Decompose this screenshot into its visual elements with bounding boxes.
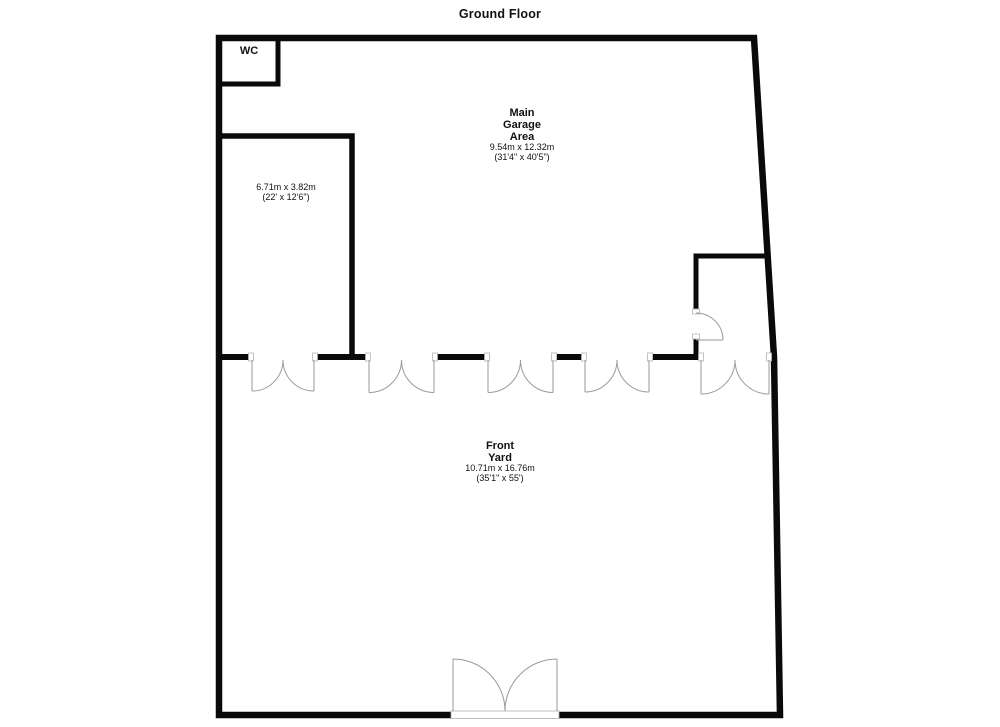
door-jamb bbox=[693, 334, 700, 339]
room-name-line: Main bbox=[490, 107, 555, 119]
room-label-front-yard: Front Yard 10.71m x 16.76m (35'1" x 55') bbox=[465, 440, 535, 483]
room-dims-imperial: (31'4" x 40'5") bbox=[490, 153, 555, 163]
store-room-wall bbox=[219, 136, 352, 357]
door-jamb bbox=[249, 353, 254, 361]
middle-wall-doors bbox=[252, 360, 769, 394]
door-jamb bbox=[582, 353, 587, 361]
door-jamb bbox=[552, 353, 557, 361]
door-arc bbox=[283, 360, 314, 391]
gate-arc bbox=[453, 659, 505, 711]
door-arc bbox=[701, 360, 735, 394]
door-arc bbox=[617, 360, 649, 392]
gate-threshold bbox=[451, 711, 559, 719]
gate-arc bbox=[505, 659, 557, 711]
door-jamb bbox=[433, 353, 438, 361]
door-jamb bbox=[699, 353, 704, 361]
room-dims-imperial: (35'1" x 55') bbox=[465, 474, 535, 484]
door-jamb bbox=[485, 353, 490, 361]
room-name-line: Garage bbox=[490, 119, 555, 131]
door-jamb bbox=[648, 353, 653, 361]
room-dims-imperial: (22' x 12'6") bbox=[256, 193, 316, 203]
door-arc bbox=[696, 313, 723, 340]
door-arc bbox=[252, 360, 283, 391]
room-name-line: Front bbox=[465, 440, 535, 452]
door-jamb bbox=[767, 353, 772, 361]
door-arc bbox=[488, 360, 521, 393]
right-room-door bbox=[696, 313, 723, 340]
door-jamb bbox=[366, 353, 371, 361]
door-arc bbox=[735, 360, 769, 394]
entrance-gates bbox=[453, 659, 557, 711]
floor-plan: Ground Floor bbox=[0, 0, 1000, 727]
door-arc bbox=[369, 360, 402, 393]
door-jambs bbox=[249, 309, 772, 361]
room-label-garage: Main Garage Area 9.54m x 12.32m (31'4" x… bbox=[490, 107, 555, 162]
door-arc bbox=[402, 360, 435, 393]
door-arc bbox=[585, 360, 617, 392]
room-label-store-room: 6.71m x 3.82m (22' x 12'6") bbox=[256, 183, 316, 202]
door-jamb bbox=[313, 353, 318, 361]
room-label-wc: WC bbox=[240, 45, 258, 57]
door-arc bbox=[521, 360, 554, 393]
room-name-wc: WC bbox=[240, 45, 258, 57]
